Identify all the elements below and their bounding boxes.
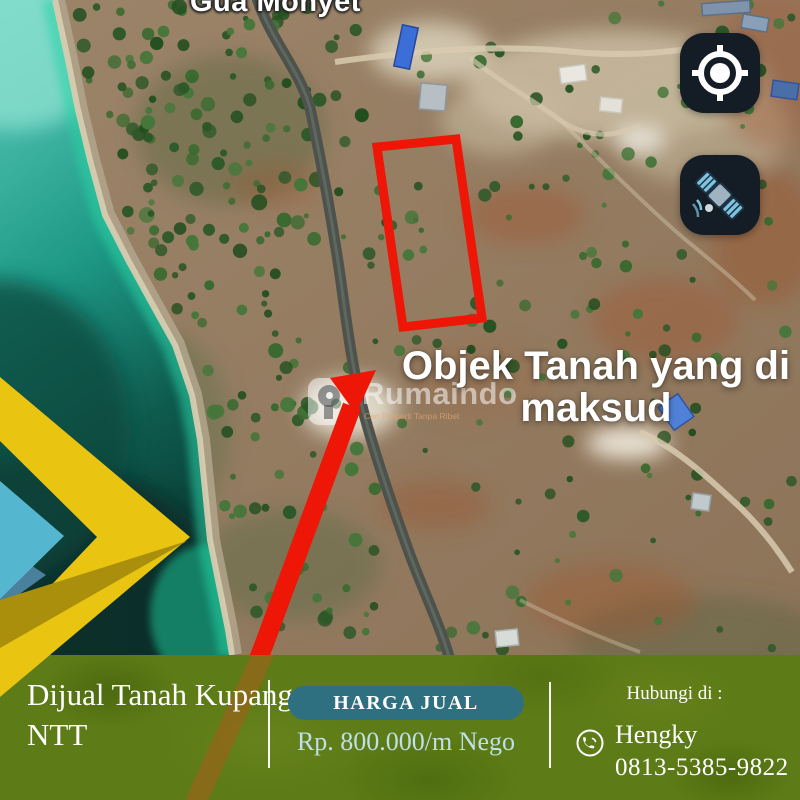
price-label-badge: HARGA JUAL	[288, 686, 524, 720]
rumaindo-logo-icon	[308, 378, 353, 425]
crosshair-target-icon	[691, 44, 749, 102]
info-banner: Dijual Tanah Kupang NTT HARGA JUAL Rp. 8…	[0, 655, 800, 800]
terrain-graphic	[0, 0, 800, 655]
price-value: Rp. 800.000/m Nego	[288, 727, 524, 757]
contact-heading: Hubungi di :	[549, 683, 800, 705]
price-label: HARGA JUAL	[333, 692, 479, 715]
contact-phone: 0813-5385-9822	[615, 753, 789, 783]
map-place-label: Gua Monyet	[190, 0, 361, 19]
contact-name: Hengky	[615, 721, 789, 750]
listing-title-line2: NTT	[27, 715, 293, 755]
locate-button[interactable]	[680, 33, 760, 113]
phone-icon	[576, 729, 604, 757]
divider	[268, 680, 270, 768]
contact-block: Hengky 0813-5385-9822	[576, 721, 789, 783]
property-flyer: Gua Monyet Rumaindo Cari Properti Tanpa …	[0, 0, 800, 800]
satellite-icon	[692, 167, 748, 223]
satellite-map: Gua Monyet Rumaindo Cari Properti Tanpa …	[0, 0, 800, 655]
listing-title: Dijual Tanah Kupang NTT	[27, 675, 293, 754]
annotation-line1: Objek Tanah yang di	[396, 345, 796, 387]
listing-title-line1: Dijual Tanah Kupang	[27, 675, 293, 715]
satellite-layer-button[interactable]	[680, 155, 760, 235]
annotation-line2: maksud	[396, 387, 796, 429]
parcel-annotation: Objek Tanah yang di maksud	[396, 345, 796, 429]
